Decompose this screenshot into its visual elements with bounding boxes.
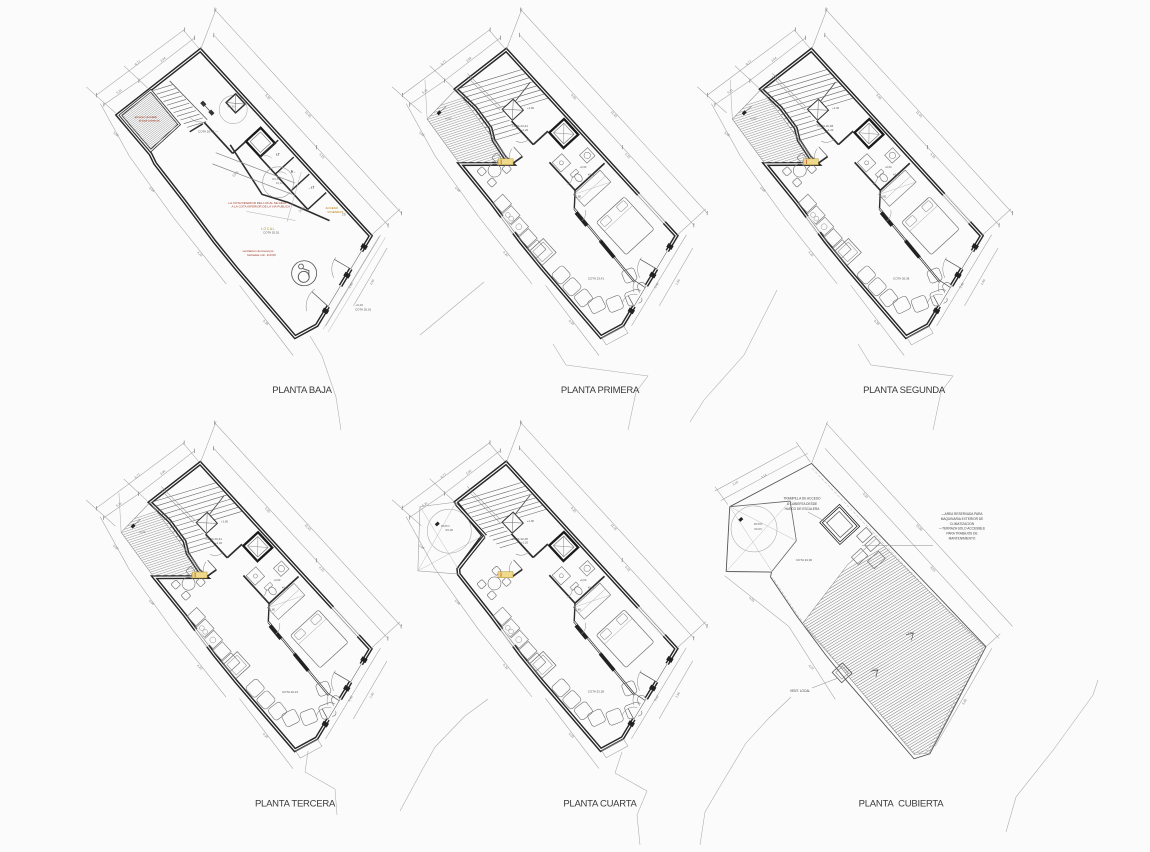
svg-text:PATIO: PATIO (754, 522, 763, 526)
svg-text:COTA 34,90: COTA 34,90 (796, 558, 813, 562)
svg-text:+0,00: +0,00 (445, 117, 452, 121)
svg-text:+1,00: +1,00 (527, 519, 535, 523)
svg-text:+1,00: +1,00 (832, 106, 840, 110)
svg-text:PLANTA PRIMERA: PLANTA PRIMERA (561, 385, 640, 396)
svg-text:—AREA RESERVADA PARA: —AREA RESERVADA PARA (941, 512, 983, 516)
svg-text:MAQUINARIA EXTERIOR DE: MAQUINARIA EXTERIOR DE (941, 517, 984, 521)
svg-text:A LA COTA INFERIOR DE LA VIA P: A LA COTA INFERIOR DE LA VIA PUBLICA (231, 205, 290, 209)
svg-text:COTA 32,28: COTA 32,28 (588, 690, 605, 694)
svg-text:+0,80: +0,80 (268, 608, 275, 612)
svg-text:+0,80: +0,80 (574, 607, 581, 611)
svg-text:TRAMPILLA DE ACCESO: TRAMPILLA DE ACCESO (783, 497, 821, 501)
svg-text:+0,60: +0,60 (580, 578, 587, 582)
svg-text:+1,20: +1,20 (826, 128, 834, 132)
svg-text:+0,80: +0,80 (574, 195, 581, 199)
svg-text:CLIMATIZACION: CLIMATIZACION (950, 522, 975, 526)
svg-text:2S: 2S (342, 213, 346, 217)
svg-text:+0,60: +0,60 (274, 578, 281, 582)
svg-text:+0,00: +0,00 (750, 117, 757, 121)
svg-text:—TERRAZA SOLO ACCESIBLE: —TERRAZA SOLO ACCESIBLE (939, 527, 985, 531)
svg-text:HUECO DE ESCALERA: HUECO DE ESCALERA (785, 507, 821, 511)
svg-text:COTA 20,45 —: COTA 20,45 — (198, 130, 218, 134)
svg-text:almacen vinculado: almacen vinculado (135, 115, 158, 119)
svg-text:COTA 29,31: COTA 29,31 (282, 690, 299, 694)
svg-text:+1,00: +1,00 (527, 106, 535, 110)
svg-text:#1,01: #1,01 (588, 173, 595, 177)
svg-text:+1,20: +1,20 (521, 541, 529, 545)
svg-text:PATIO: PATIO (441, 524, 450, 528)
svg-text:60,00: 60,00 (754, 527, 762, 531)
svg-text:al local comercial: al local comercial (139, 119, 160, 123)
svg-text:MANTENIMIENTO: MANTENIMIENTO (949, 537, 976, 541)
svg-text:+0,80: +0,80 (880, 195, 887, 199)
svg-text:+1,20: +1,20 (521, 128, 529, 132)
svg-text:2,5%: 2,5% (908, 631, 915, 635)
svg-text:I.T: I.T (276, 152, 280, 156)
svg-text:+0,00: +0,00 (139, 530, 146, 534)
svg-text:VIVIENDAS: VIVIENDAS (327, 210, 343, 214)
svg-text:#1,01: #1,01 (282, 586, 289, 590)
svg-text:fachadas min. 2x0,06: fachadas min. 2x0,06 (247, 253, 276, 257)
svg-text:+0,60: +0,60 (885, 165, 892, 169)
svg-text:#1,01: #1,01 (588, 585, 595, 589)
svg-text:COTA 20,01: COTA 20,01 (355, 308, 372, 312)
svg-text:B→: B→ (291, 169, 296, 173)
svg-text:PLANTA SEGUNDA: PLANTA SEGUNDA (863, 385, 946, 396)
svg-text:→I.T: →I.T (308, 186, 314, 190)
svg-text:PLANTA BAJA: PLANTA BAJA (272, 385, 332, 396)
svg-text:PLANTA TERCERA: PLANTA TERCERA (255, 799, 336, 810)
svg-text:PLANTA CUARTA: PLANTA CUARTA (563, 799, 637, 810)
svg-text:60,00: 60,00 (446, 528, 454, 532)
svg-text:+1,00: +1,00 (221, 519, 229, 523)
svg-text:COTA 20,01: COTA 20,01 (263, 231, 280, 235)
svg-text:+1,20: +1,20 (215, 541, 223, 545)
svg-text:VENT. LOCAL: VENT. LOCAL (790, 689, 811, 693)
svg-text:COTA 23,41: COTA 23,41 (588, 277, 605, 281)
svg-text:PARA TRABAJOS DE: PARA TRABAJOS DE (946, 532, 977, 536)
svg-text:#1,16: #1,16 (276, 181, 283, 185)
svg-text:2,5%: 2,5% (872, 668, 879, 672)
svg-text:#1,50: #1,50 (228, 104, 235, 108)
svg-text:#1,01: #1,01 (893, 173, 900, 177)
svg-text:PLANTA CUBIERTA: PLANTA CUBIERTA (859, 799, 945, 810)
svg-text:+0,60: +0,60 (580, 165, 587, 169)
svg-text:A CUBIERTA DESDE: A CUBIERTA DESDE (787, 502, 817, 506)
svg-text:+0,10: +0,10 (355, 303, 363, 307)
svg-text:COTA 26,38: COTA 26,38 (893, 277, 910, 281)
